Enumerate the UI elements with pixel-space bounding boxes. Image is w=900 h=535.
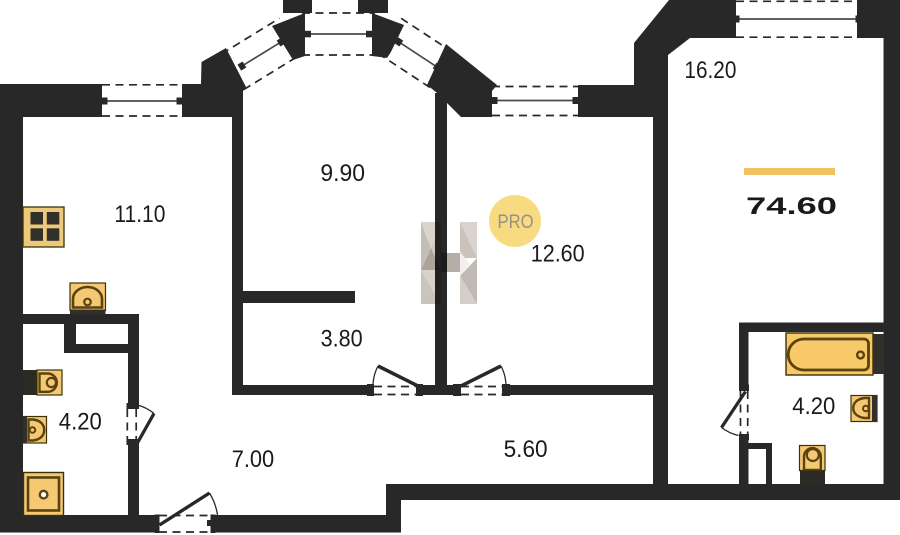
svg-text:16.20: 16.20 — [684, 57, 736, 84]
svg-text:74.60: 74.60 — [746, 193, 837, 220]
svg-text:11.10: 11.10 — [114, 201, 165, 228]
svg-text:PRO: PRO — [498, 212, 534, 233]
svg-text:3.80: 3.80 — [321, 326, 363, 353]
svg-text:12.60: 12.60 — [531, 241, 585, 268]
svg-text:7.00: 7.00 — [232, 446, 275, 473]
svg-text:4.20: 4.20 — [59, 409, 102, 436]
svg-text:9.90: 9.90 — [320, 160, 365, 187]
svg-text:5.60: 5.60 — [504, 436, 548, 463]
svg-text:4.20: 4.20 — [792, 393, 835, 420]
